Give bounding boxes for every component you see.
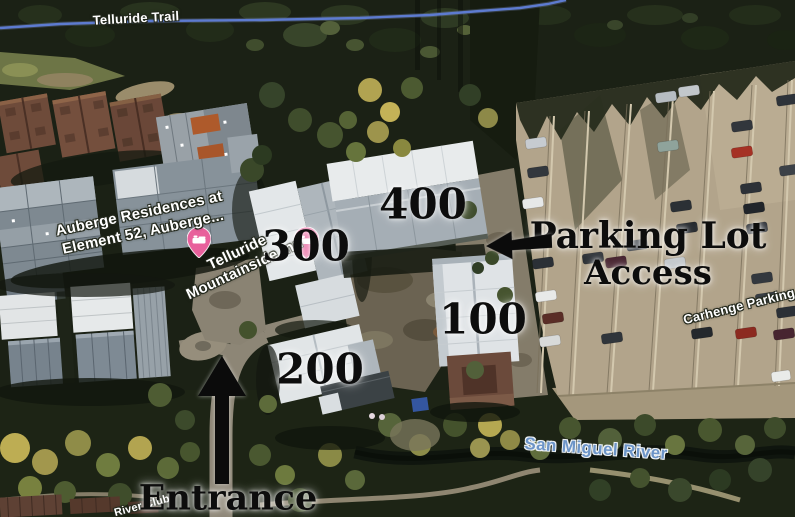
building-100-label: 100 (439, 295, 527, 344)
map-canvas: Telluride Trail Auberge Residences at El… (0, 0, 795, 517)
parking-access-line1: Parking Lot (530, 218, 767, 255)
building-300-label: 300 (262, 222, 350, 271)
building-200-label: 200 (276, 345, 364, 394)
parking-access-arrow-icon (481, 227, 554, 263)
building-400-label: 400 (379, 180, 467, 229)
parking-access-line2: Access (530, 255, 767, 292)
entrance-arrow-icon (196, 354, 248, 486)
parking-lot-access-label: Parking Lot Access (530, 218, 767, 292)
